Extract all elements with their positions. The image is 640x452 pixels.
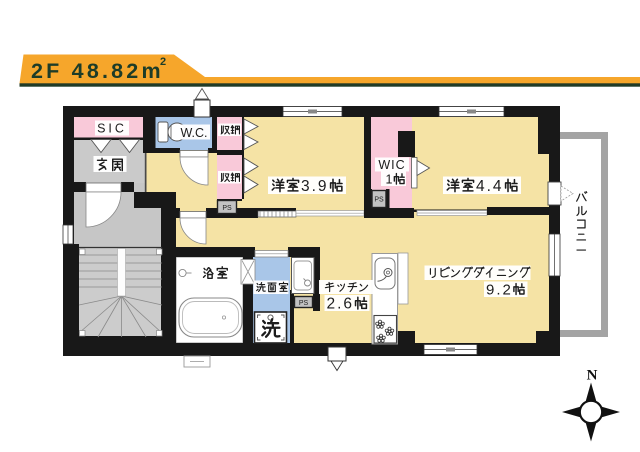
svg-text:1: 1: [386, 173, 393, 187]
svg-text:WIC: WIC: [378, 158, 405, 172]
svg-text:PS: PS: [299, 300, 309, 307]
svg-text:3.9: 3.9: [301, 178, 329, 195]
svg-text:SIC: SIC: [97, 122, 127, 136]
svg-text:2: 2: [160, 56, 166, 68]
svg-text:9.2: 9.2: [486, 282, 513, 299]
svg-text:PS: PS: [222, 205, 232, 212]
svg-text:2.6: 2.6: [327, 296, 355, 313]
svg-text:N: N: [587, 368, 598, 384]
svg-text:4.4: 4.4: [476, 178, 504, 195]
svg-text:2F 48.82m: 2F 48.82m: [31, 59, 164, 83]
svg-text:W.C.: W.C.: [180, 126, 207, 140]
svg-text:PS: PS: [374, 197, 384, 204]
